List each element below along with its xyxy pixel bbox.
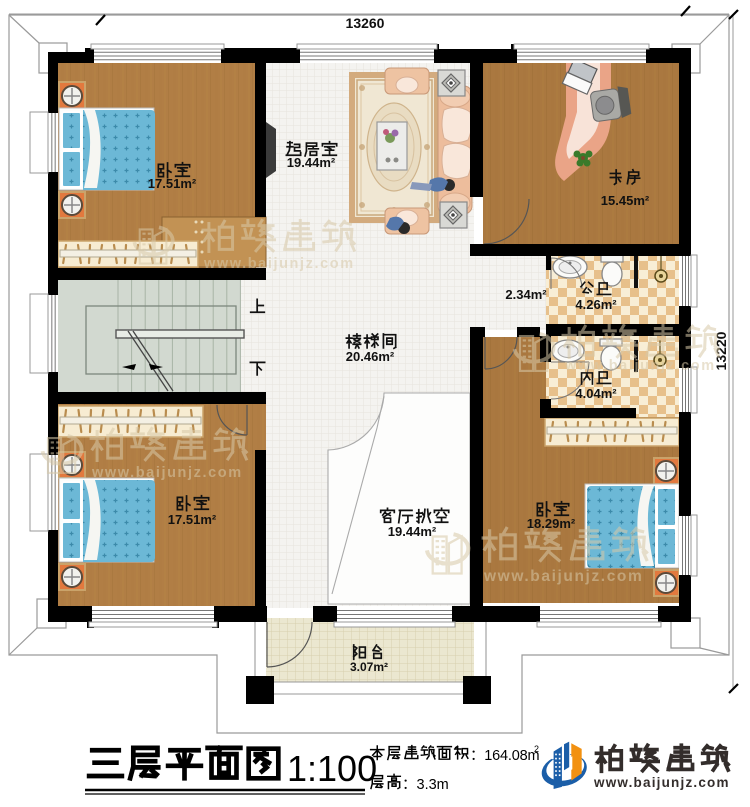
svg-text:17.51m²: 17.51m² xyxy=(148,176,197,191)
svg-text:www.baijunjz.com: www.baijunjz.com xyxy=(483,568,643,585)
svg-text:4.26m²: 4.26m² xyxy=(575,297,617,312)
svg-text:2.34m²: 2.34m² xyxy=(505,287,547,302)
svg-text:www.baijunjz.com: www.baijunjz.com xyxy=(593,775,730,790)
svg-text:www.baijunjz.com: www.baijunjz.com xyxy=(564,358,716,374)
svg-text:www.baijunjz.com: www.baijunjz.com xyxy=(203,256,355,272)
svg-text:15.45m²: 15.45m² xyxy=(601,193,650,208)
svg-text:19.44m²: 19.44m² xyxy=(388,524,437,539)
svg-text:：3.3m: ：3.3m xyxy=(402,777,449,793)
svg-text:13260: 13260 xyxy=(346,15,385,31)
svg-text:19.44m²: 19.44m² xyxy=(287,155,336,170)
svg-text:：164.08m: ：164.08m xyxy=(470,748,539,764)
svg-text:2: 2 xyxy=(534,744,539,754)
svg-text:www.baijunjz.com: www.baijunjz.com xyxy=(91,465,243,481)
svg-text:18.29m²: 18.29m² xyxy=(527,516,576,531)
svg-text:17.51m²: 17.51m² xyxy=(168,512,217,527)
svg-text:1:100: 1:100 xyxy=(287,748,377,789)
svg-text:4.04m²: 4.04m² xyxy=(575,386,617,401)
svg-text:3.07m²: 3.07m² xyxy=(350,660,388,674)
svg-text:20.46m²: 20.46m² xyxy=(346,349,395,364)
